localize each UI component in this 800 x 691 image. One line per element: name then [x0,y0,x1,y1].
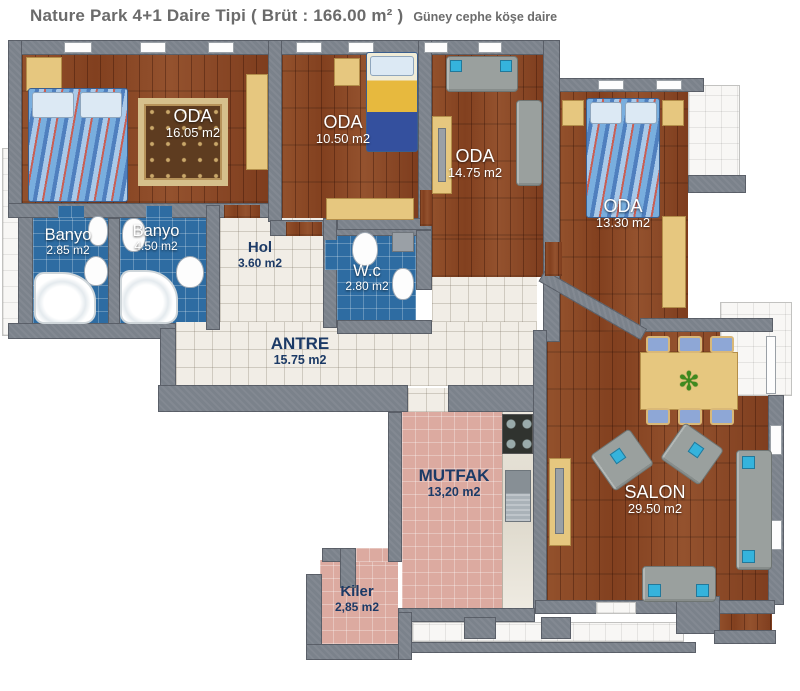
door-opening [325,240,337,270]
window [770,425,782,455]
stove [502,414,533,454]
nightstand [26,57,62,91]
pillow [370,56,414,76]
nightstand [334,58,360,86]
cabinet-inset [438,128,446,182]
window [424,42,448,53]
balcony-door [766,336,776,394]
wall [448,385,545,412]
plant: ✻ [678,368,700,394]
window [208,42,234,53]
sofa-cushion [450,60,462,72]
plan-header: Nature Park 4+1 Daire Tipi ( Brüt : 166.… [30,6,790,26]
wall [268,40,282,222]
door-opening [408,388,448,412]
balcony-top-right [688,85,740,177]
window [656,80,682,90]
pillow [625,102,657,124]
wall [398,612,412,660]
pillow [32,92,74,118]
sofa-cushion [696,584,709,597]
wall [306,644,410,660]
nightstand [562,100,584,126]
wall [533,330,547,612]
sofa-cushion [742,550,755,563]
dining-chair [678,336,702,353]
page-subtitle: Güney cephe köşe daire [413,10,557,24]
floor-plan-page: Nature Park 4+1 Daire Tipi ( Brüt : 166.… [0,0,800,691]
wall [8,323,176,339]
dining-chair [646,408,670,425]
wall [714,630,776,644]
dining-chair [678,408,702,425]
door-opening [286,222,322,236]
kitchen-sink [505,470,531,522]
window [140,42,166,53]
window [598,80,624,90]
washer [392,232,414,252]
dining-chair [710,408,734,425]
sink [122,218,146,252]
wall-column [464,617,496,639]
kiler-floor [320,560,398,644]
wall [340,548,356,588]
sink [392,268,414,300]
sink [88,216,108,246]
bench [326,198,414,220]
wardrobe [246,74,268,170]
tv-unit-inset [555,468,564,534]
wall [8,40,22,212]
salon-floor-ext [718,612,772,632]
window [64,42,92,53]
sofa-cushion [742,456,755,469]
nightstand [662,100,684,126]
wall [18,205,33,335]
sofa [516,100,542,186]
door-opening [596,602,636,614]
pillow [80,92,122,118]
toilet [352,232,378,266]
wall [158,385,408,412]
window [478,42,502,53]
wardrobe [662,216,686,308]
dining-chair [710,336,734,353]
wall [306,574,322,652]
wall [323,218,337,328]
page-title: Nature Park 4+1 Daire Tipi ( Brüt : 166.… [30,6,403,25]
wall [640,318,773,332]
wall [543,40,560,342]
antre-floor-upper [432,277,537,322]
sofa-cushion [648,584,661,597]
window [296,42,322,53]
mutfak-floor [402,412,502,612]
wall [404,642,696,653]
door-opening [545,242,562,276]
wall [108,218,120,330]
wall [416,230,432,290]
hall-wood-floor [432,236,543,277]
door-opening [58,206,84,218]
wall [535,600,775,614]
dining-chair [646,336,670,353]
wall [688,175,746,193]
wall [206,205,220,330]
door-opening [146,206,172,218]
pillow [590,102,622,124]
rug [138,98,228,186]
wall-column [541,617,571,639]
sofa-cushion [500,60,512,72]
toilet [176,256,204,288]
door-opening [420,190,432,226]
door-opening [224,205,260,218]
wall [337,320,432,334]
wall [388,412,402,562]
